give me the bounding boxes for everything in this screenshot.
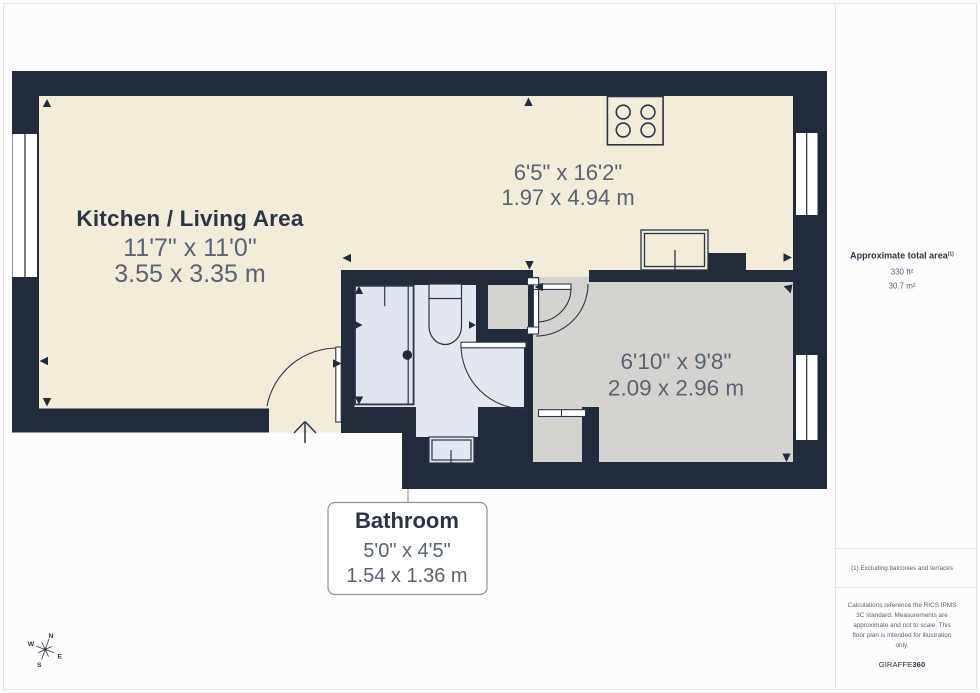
svg-text:N: N [48, 633, 53, 640]
svg-text:Kitchen / Living Area: Kitchen / Living Area [76, 206, 303, 231]
svg-text:(1) Excluding balconies and te: (1) Excluding balconies and terraces [851, 565, 953, 572]
svg-text:1.54 x 1.36 m: 1.54 x 1.36 m [346, 565, 467, 587]
svg-text:30.7 m²: 30.7 m² [888, 282, 915, 291]
svg-text:only.: only. [895, 642, 908, 649]
svg-text:GIRAFFE360: GIRAFFE360 [879, 660, 926, 669]
svg-text:3C standard. Measurements are: 3C standard. Measurements are [856, 612, 948, 619]
svg-text:E: E [58, 654, 63, 661]
svg-text:330 ft²: 330 ft² [891, 268, 914, 277]
svg-text:3.55 x 3.35 m: 3.55 x 3.35 m [114, 260, 265, 288]
svg-text:6'5" x 16'2": 6'5" x 16'2" [514, 160, 622, 185]
svg-text:11'7" x 11'0": 11'7" x 11'0" [123, 234, 256, 262]
svg-text:Bathroom: Bathroom [355, 508, 459, 533]
svg-text:approximate and not to scale.: approximate and not to scale. This [853, 622, 951, 629]
svg-text:6'10" x 9'8": 6'10" x 9'8" [621, 349, 732, 374]
svg-text:floor plan is intended for ill: floor plan is intended for illustration [853, 632, 952, 639]
svg-text:5'0" x 4'5": 5'0" x 4'5" [363, 540, 450, 562]
svg-text:S: S [37, 662, 42, 669]
svg-text:Calculations reference the RIC: Calculations reference the RICS IPMS [848, 602, 957, 609]
svg-text:2.09 x 2.96 m: 2.09 x 2.96 m [608, 376, 744, 401]
svg-text:Approximate total area(1): Approximate total area(1) [850, 251, 954, 261]
svg-text:W: W [28, 641, 35, 648]
svg-text:1.97 x 4.94 m: 1.97 x 4.94 m [501, 185, 634, 210]
